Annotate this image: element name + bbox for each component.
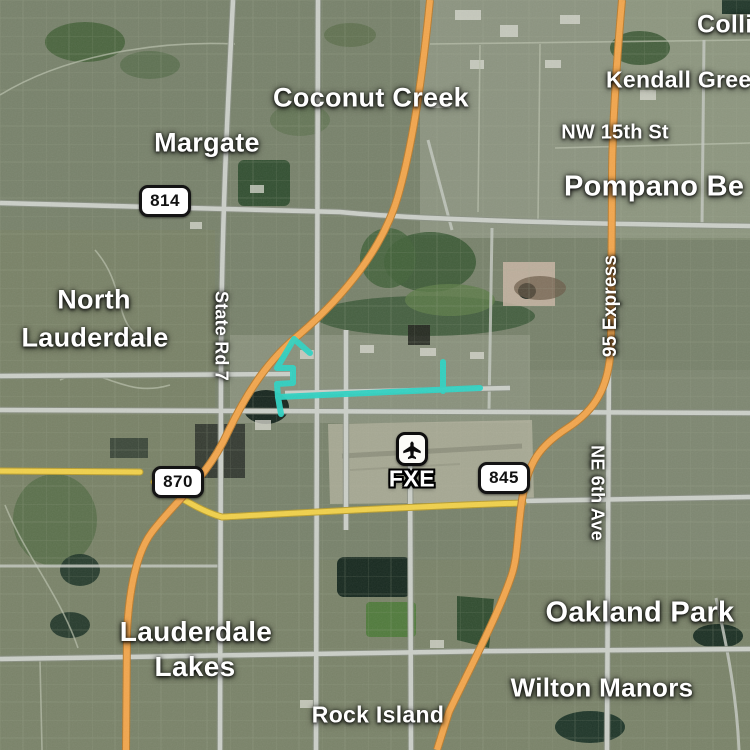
- map-canvas: [0, 0, 750, 750]
- satellite-map[interactable]: Coconut Creek Margate Colli Kendall Gree…: [0, 0, 750, 750]
- satellite-grain: [0, 0, 750, 750]
